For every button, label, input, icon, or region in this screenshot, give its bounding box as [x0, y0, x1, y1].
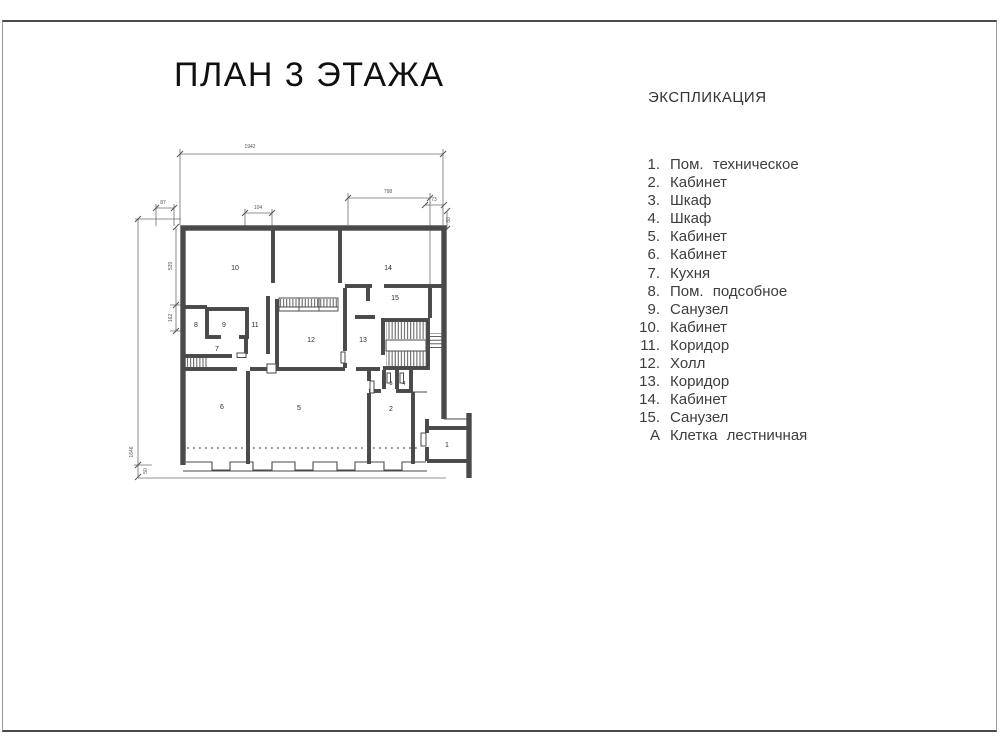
room-number-label: 5 [297, 405, 301, 412]
room-number-label: 6 [220, 404, 224, 411]
room-number-label: 11 [251, 322, 258, 329]
dimension-label: 30 [446, 217, 452, 223]
dimension-label: 539 [168, 262, 174, 271]
room-number-label: 12 [307, 337, 315, 344]
room-number-label: 2 [389, 406, 393, 413]
room-number-label: 14 [384, 265, 392, 272]
room-number-label: 15 [391, 295, 399, 302]
dimension-text-labels: 1942871047987330539162164650 [129, 144, 452, 474]
entry-steps [184, 357, 206, 370]
dimension-label: 1942 [244, 144, 255, 150]
floor-plan-drawing: 123456789101112131415 194287104798733053… [0, 0, 1000, 750]
dimension-label: 1646 [129, 446, 135, 457]
room-number-label: 13 [359, 337, 367, 344]
room-number-label: 8 [194, 322, 198, 329]
room-number-label: 1 [445, 442, 449, 449]
dimension-label: 50 [143, 468, 149, 474]
room-number-label: 10 [231, 265, 239, 272]
dimension-label: 798 [384, 189, 393, 195]
window-band [279, 298, 338, 311]
room-number-label: 4 [402, 381, 405, 387]
room-number-label: 3 [389, 381, 392, 387]
staircase [386, 322, 443, 366]
dimension-label: 87 [160, 200, 166, 206]
room-number-label: 9 [222, 322, 226, 329]
dimension-label: 104 [254, 205, 263, 211]
dimension-label: 162 [168, 314, 174, 323]
room-number-label: 7 [215, 346, 219, 353]
dimension-label: 73 [431, 197, 437, 203]
